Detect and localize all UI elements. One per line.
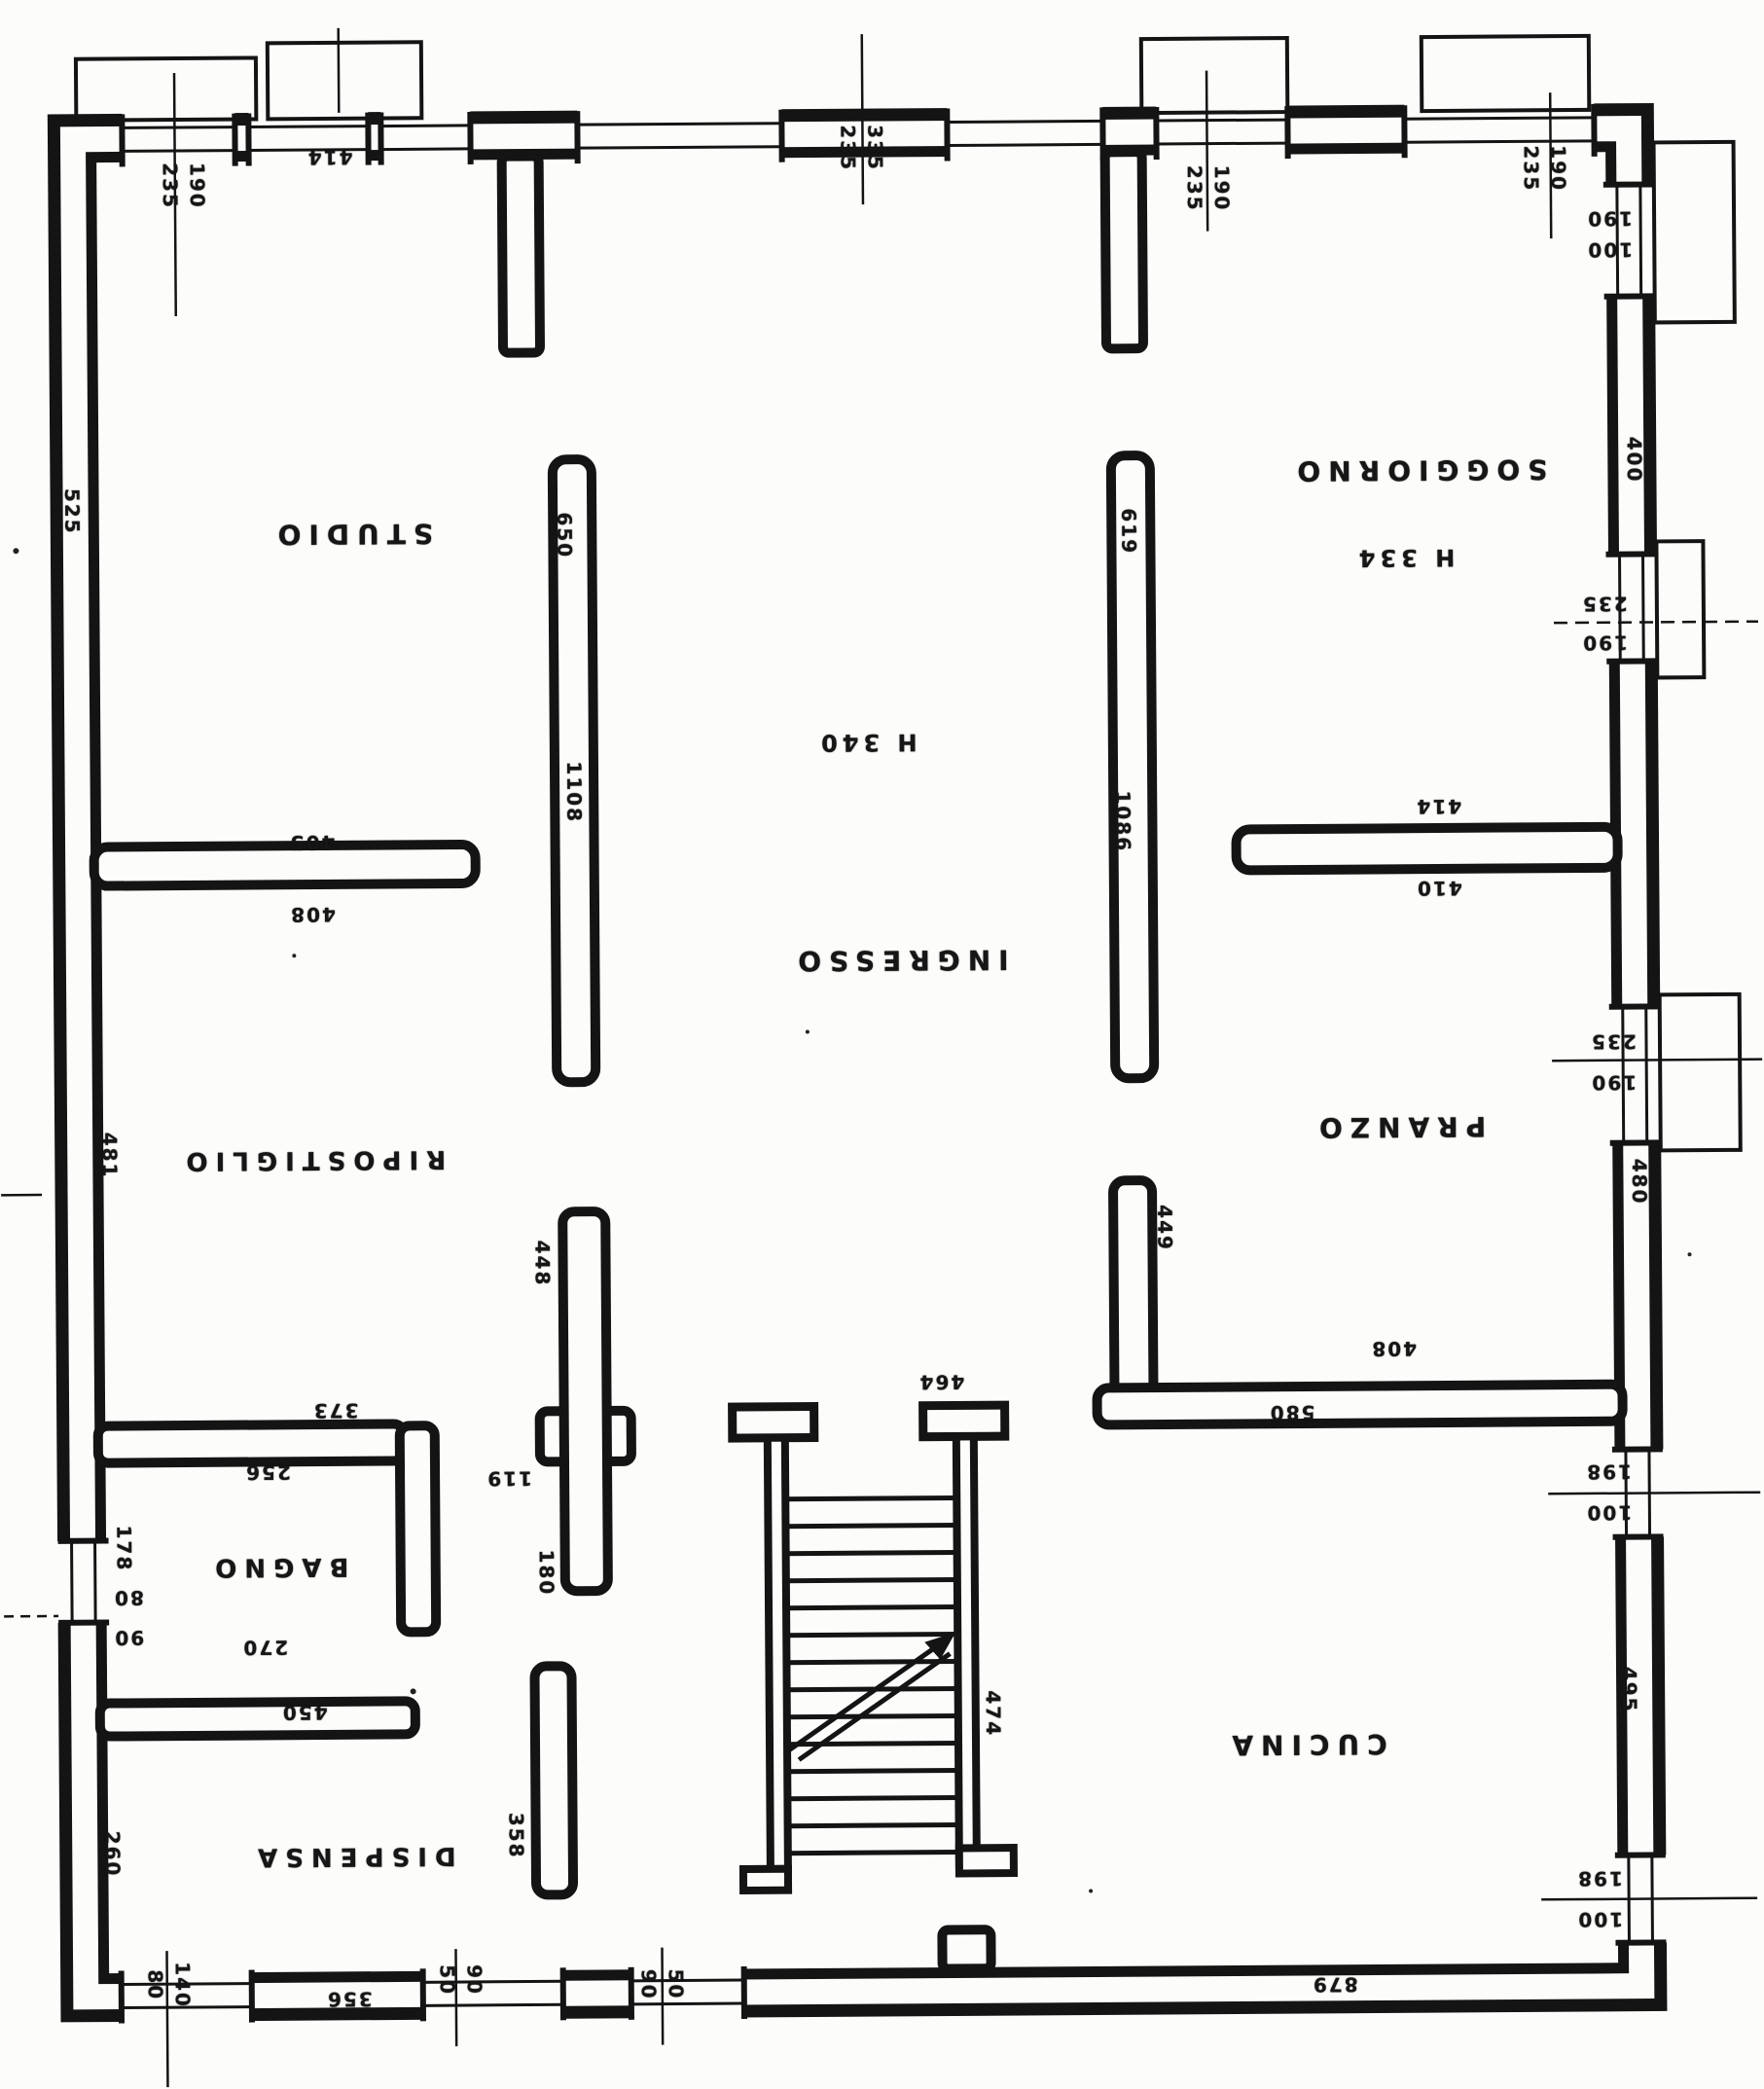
room-label-cucina: CUCINA: [1224, 1728, 1387, 1761]
dim-358: 358: [505, 1813, 528, 1859]
dim-tr-190: 190: [1586, 207, 1633, 231]
dim-256: 256: [244, 1460, 291, 1484]
dim-lwin-90: 90: [113, 1626, 144, 1649]
dim-rwin4-100: 100: [1576, 1908, 1623, 1931]
dim-405: 405: [289, 831, 336, 854]
dim-119: 119: [486, 1467, 532, 1491]
dim-414-pranzo: 414: [1415, 795, 1461, 818]
centerlines: [0, 18, 1764, 2089]
dim-left-481: 481: [98, 1133, 122, 1179]
dim-449: 449: [1153, 1205, 1176, 1251]
staircase: [733, 1405, 1014, 1891]
stair-treads: [785, 1497, 959, 1853]
dim-rwin2-190: 190: [1590, 1071, 1637, 1095]
dim-right-480: 480: [1628, 1159, 1651, 1206]
label-ingresso-height: H 340: [816, 729, 918, 757]
dim-408-cucina: 408: [1370, 1337, 1417, 1360]
room-label-studio: STUDIO: [270, 518, 433, 551]
dim-1086: 1086: [1111, 790, 1134, 852]
dim-bwin3-50: 50: [665, 1968, 688, 1999]
dim-bwin2-90: 90: [463, 1964, 486, 1996]
dim-rwin1-235: 235: [1581, 593, 1628, 616]
dim-408: 408: [289, 903, 336, 926]
room-label-ingresso: INGRESSO: [790, 944, 1009, 978]
dim-bottom-879: 879: [1312, 1973, 1358, 1997]
dim-373: 373: [312, 1399, 359, 1423]
dim-bwin3-90: 90: [637, 1969, 661, 2000]
dim-top-414: 414: [306, 146, 353, 169]
dim-right-400: 400: [1623, 437, 1646, 484]
room-label-dispensa: DISPENSA: [250, 1841, 456, 1871]
dim-rwin2-235: 235: [1590, 1030, 1637, 1054]
dim-1108: 1108: [562, 761, 586, 823]
dim-410: 410: [1416, 877, 1462, 900]
floor-plan-sheet: STUDIO SOGGIORNO H 334 H 340 INGRESSO RI…: [0, 0, 1764, 2089]
dim-win5-235: 235: [1520, 145, 1543, 192]
stair-newel-right: [923, 1405, 1005, 1437]
scan-skew-wrapper: STUDIO SOGGIORNO H 334 H 340 INGRESSO RI…: [0, 0, 1764, 2089]
dim-left-178: 178: [112, 1525, 135, 1571]
room-label-bagno: BAGNO: [207, 1552, 348, 1582]
dim-top-center-235: 235: [836, 125, 859, 171]
dim-left-260: 260: [101, 1831, 125, 1878]
room-label-ripostiglio: RIPOSTIGLIO: [178, 1144, 446, 1175]
dim-rwin1-190: 190: [1581, 631, 1628, 655]
dim-rwin4-198: 198: [1576, 1867, 1623, 1891]
label-soggiorno-height: H 334: [1354, 544, 1456, 572]
dim-left-525: 525: [60, 488, 84, 535]
dim-180: 180: [535, 1549, 558, 1596]
dim-bwin1-80: 80: [144, 1969, 167, 2000]
dim-tr-100: 100: [1586, 238, 1633, 262]
dim-450: 450: [281, 1701, 328, 1724]
dim-win1-190: 190: [186, 162, 209, 209]
dim-rwin3-100: 100: [1585, 1501, 1632, 1525]
dim-580: 580: [1269, 1401, 1315, 1424]
dim-270: 270: [241, 1636, 288, 1659]
dim-650: 650: [553, 512, 576, 558]
dim-win1-235: 235: [159, 162, 182, 209]
dim-bwin1-140: 140: [171, 1962, 195, 2008]
dim-bwin2-50: 50: [436, 1964, 459, 1996]
stair-newel-left: [733, 1406, 814, 1438]
dim-464: 464: [918, 1370, 964, 1393]
dim-rwin3-198: 198: [1585, 1460, 1632, 1484]
floor-plan-drawing: [0, 0, 1764, 2089]
dim-448: 448: [530, 1240, 554, 1286]
dim-619: 619: [1117, 508, 1140, 555]
room-label-soggiorno: SOGGIORNO: [1289, 453, 1547, 487]
dim-bottom-356: 356: [326, 1988, 373, 2011]
dim-top-center-335: 335: [863, 125, 886, 171]
dim-win5-190: 190: [1547, 145, 1570, 192]
dim-right-495: 495: [1617, 1667, 1640, 1713]
exterior-projections: [76, 33, 1741, 1162]
dim-win4-190: 190: [1210, 165, 1234, 212]
dim-474: 474: [982, 1690, 1005, 1737]
dim-win4-235: 235: [1183, 165, 1206, 212]
room-label-pranzo: PRANZO: [1312, 1110, 1487, 1143]
dim-lwin-80: 80: [113, 1586, 144, 1609]
